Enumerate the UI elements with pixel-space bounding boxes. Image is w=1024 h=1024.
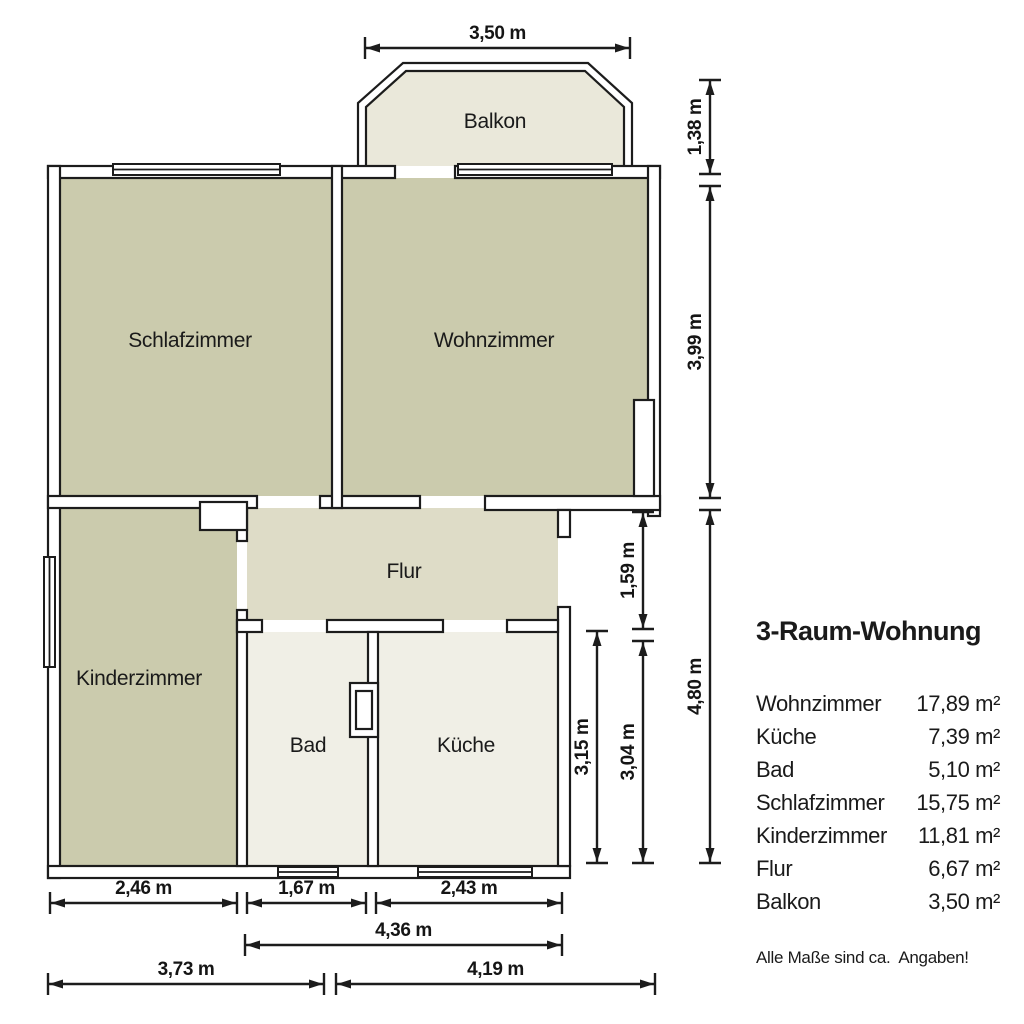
- legend-room-area: 17,89 m²: [916, 687, 1000, 720]
- legend-room-area: 3,50 m²: [928, 885, 1000, 918]
- legend-room-area: 6,67 m²: [928, 852, 1000, 885]
- label-schlafzimmer: Schlafzimmer: [128, 329, 252, 352]
- dimension: 3,99 m: [685, 186, 721, 498]
- wall-left: [48, 166, 60, 878]
- wall-flur-bottom-b: [327, 620, 443, 632]
- floorplan-page: Balkon Schlafzimmer Wohnzimmer Flur Kind…: [0, 0, 1024, 1024]
- legend-room-name: Kinderzimmer: [756, 819, 887, 852]
- dimension: 4,80 m: [685, 510, 721, 863]
- dim-label: 4,80 m: [685, 658, 706, 715]
- label-kinderzimmer: Kinderzimmer: [76, 667, 202, 690]
- label-wohnzimmer: Wohnzimmer: [434, 329, 555, 352]
- legend-row: Bad5,10 m²: [756, 753, 1000, 786]
- dim-label: 1,38 m: [685, 99, 706, 156]
- legend-room-name: Bad: [756, 753, 794, 786]
- dimension: 2,43 m: [376, 878, 562, 914]
- dimension: 3,73 m: [48, 959, 324, 995]
- legend-room-name: Flur: [756, 852, 792, 885]
- label-balkon: Balkon: [464, 110, 526, 133]
- legend-row: Flur6,67 m²: [756, 852, 1000, 885]
- legend-row: Wohnzimmer17,89 m²: [756, 687, 1000, 720]
- wall-right-lower-a: [558, 510, 570, 537]
- legend-title: 3-Raum-Wohnung: [756, 616, 1000, 647]
- dimension: 1,67 m: [247, 878, 366, 914]
- dimension: 4,36 m: [245, 920, 562, 956]
- dimension: 3,15 m: [572, 631, 608, 863]
- dim-label: 3,50 m: [469, 23, 526, 44]
- legend-room-name: Balkon: [756, 885, 821, 918]
- wall-flur-bottom-c: [507, 620, 558, 632]
- wall-schlaf-wohn-divider: [332, 166, 342, 508]
- legend-row: Küche7,39 m²: [756, 720, 1000, 753]
- wall-kinder-bad-b: [237, 610, 247, 866]
- dim-label: 4,19 m: [467, 959, 524, 980]
- dim-label: 1,59 m: [618, 542, 639, 599]
- dim-label: 2,46 m: [115, 878, 172, 899]
- legend-room-area: 7,39 m²: [928, 720, 1000, 753]
- legend-room-name: Schlafzimmer: [756, 786, 884, 819]
- legend-row: Kinderzimmer11,81 m²: [756, 819, 1000, 852]
- shaft-bad-inner: [356, 691, 372, 729]
- wall-flur-bottom-a: [237, 620, 262, 632]
- dimension: 3,04 m: [618, 641, 654, 863]
- dimension: 1,38 m: [685, 80, 721, 174]
- label-kueche: Küche: [437, 734, 495, 757]
- legend-row: Schlafzimmer15,75 m²: [756, 786, 1000, 819]
- legend: 3-Raum-Wohnung Wohnzimmer17,89 m² Küche7…: [756, 616, 1000, 968]
- dim-label: 3,15 m: [572, 719, 593, 776]
- legend-rows: Wohnzimmer17,89 m² Küche7,39 m² Bad5,10 …: [756, 687, 1000, 918]
- legend-row: Balkon3,50 m²: [756, 885, 1000, 918]
- dim-label: 1,67 m: [278, 878, 335, 899]
- dim-label: 2,43 m: [441, 878, 498, 899]
- wall-right-lower-b: [558, 607, 570, 866]
- legend-note: Alle Maße sind ca. Angaben!: [756, 948, 1000, 968]
- wall-bad-kueche-divider: [368, 632, 378, 866]
- dimension: 3,50 m: [365, 23, 630, 59]
- legend-room-area: 11,81 m²: [918, 819, 1000, 852]
- legend-room-area: 15,75 m²: [916, 786, 1000, 819]
- dim-label: 3,73 m: [158, 959, 215, 980]
- dim-label: 3,04 m: [618, 724, 639, 781]
- label-bad: Bad: [290, 734, 326, 757]
- dim-label: 3,99 m: [685, 314, 706, 371]
- dim-label: 4,36 m: [375, 920, 432, 941]
- label-flur: Flur: [387, 560, 422, 583]
- legend-room-name: Wohnzimmer: [756, 687, 881, 720]
- dimension: 1,59 m: [618, 512, 654, 629]
- dimension: 4,19 m: [336, 959, 655, 995]
- wall-wohnzimmer-bottom: [485, 496, 660, 510]
- legend-room-name: Küche: [756, 720, 816, 753]
- niche-wohnzimmer-wall: [634, 400, 654, 496]
- dimension: 2,46 m: [50, 878, 237, 914]
- legend-room-area: 5,10 m²: [928, 753, 1000, 786]
- niche-kinderzimmer: [200, 502, 247, 530]
